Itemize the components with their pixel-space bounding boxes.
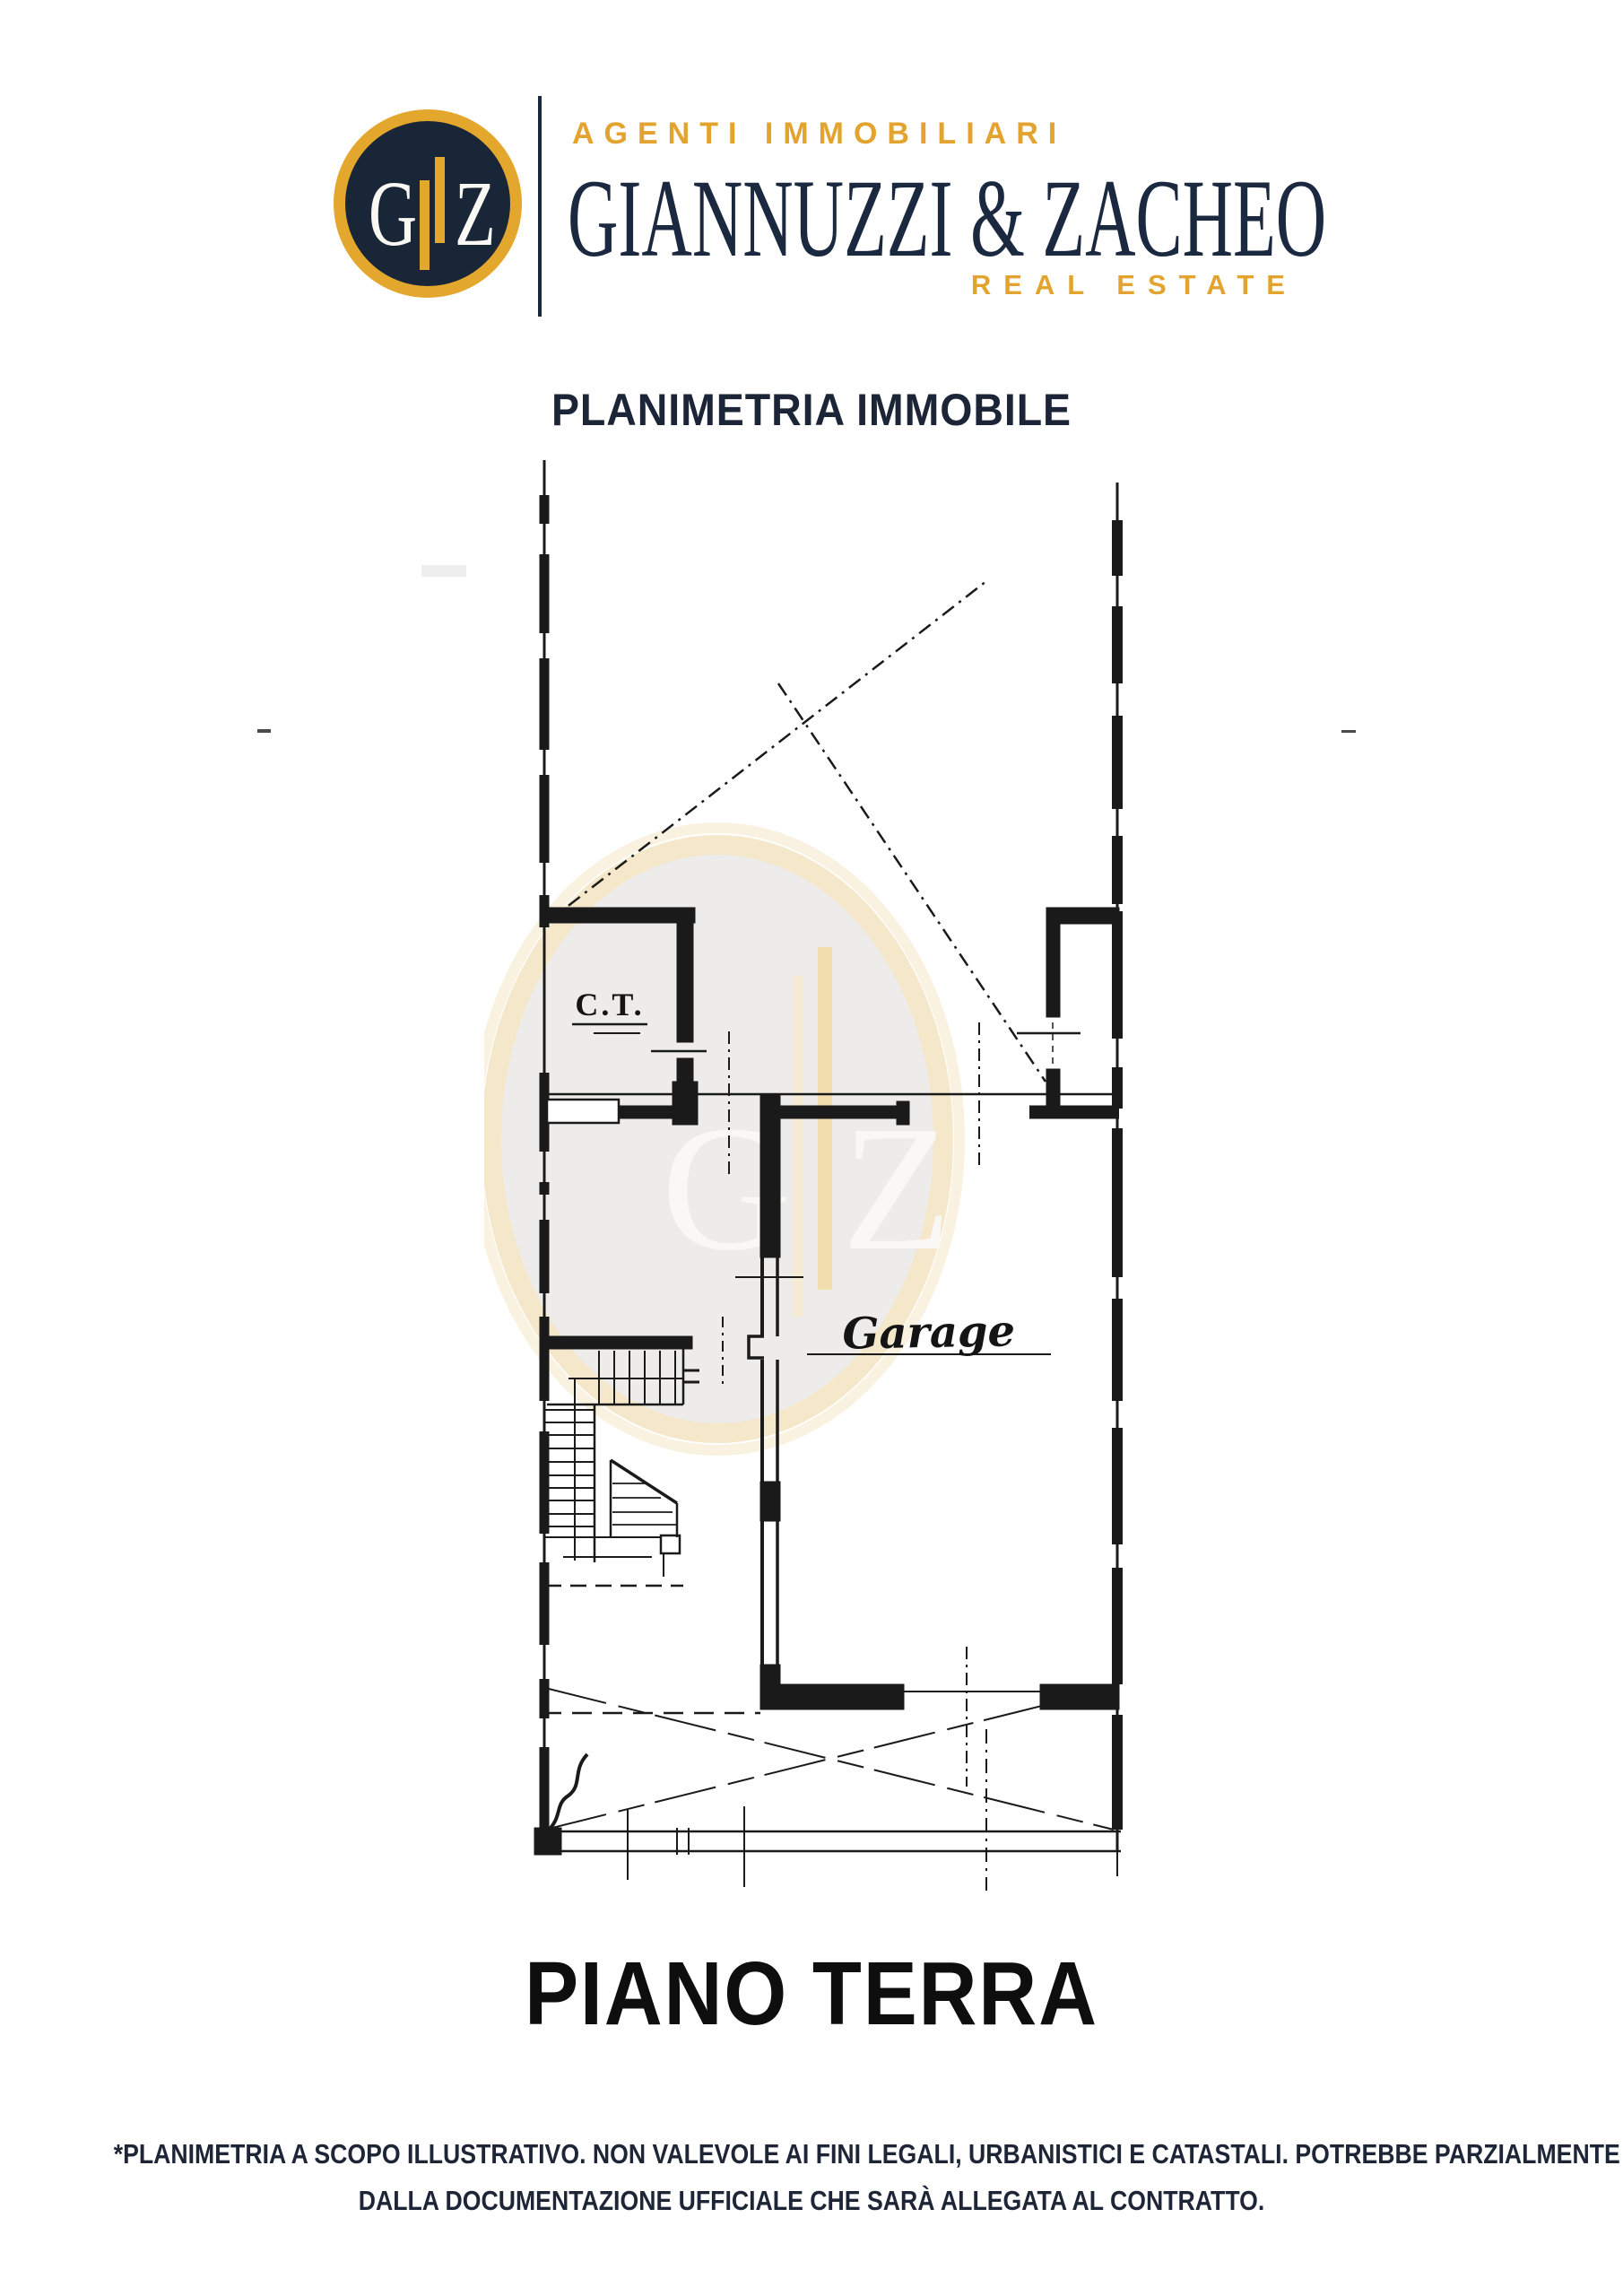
page-title: PLANIMETRIA IMMOBILE bbox=[56, 384, 1566, 436]
floor-label: PIANO TERRA bbox=[82, 1943, 1542, 2046]
brand-monogram-left: G bbox=[369, 168, 417, 261]
header: G Z AGENTI IMMOBILIARI GIANNUZZI & ZACHE… bbox=[0, 0, 1623, 430]
brand-name: GIANNUZZI & ZACHEO bbox=[568, 163, 1326, 274]
brand-monogram-bar-icon bbox=[420, 180, 430, 270]
registration-mark-right bbox=[1341, 730, 1356, 733]
room-label-ct: C.T. bbox=[575, 987, 644, 1022]
disclaimer-line-2: DALLA DOCUMENTAZIONE UFFICIALE CHE SARÀ … bbox=[114, 2185, 1510, 2217]
room-top-right bbox=[1017, 908, 1119, 1116]
page: G Z AGENTI IMMOBILIARI GIANNUZZI & ZACHE… bbox=[0, 0, 1623, 2296]
room-label-garage: Garage bbox=[842, 1306, 1016, 1359]
floor-plan: G Z bbox=[484, 430, 1166, 1937]
brand-monogram-bar-icon bbox=[435, 157, 445, 243]
disclaimer-line-1: *PLANIMETRIA A SCOPO ILLUSTRATIVO. NON V… bbox=[114, 2138, 1510, 2170]
brand-logo-icon: G Z bbox=[334, 109, 522, 298]
scan-artifact bbox=[421, 565, 466, 577]
wall-garage-bottom bbox=[760, 1647, 1119, 1787]
registration-mark-left bbox=[257, 729, 271, 733]
brand-tagline-bottom: REAL ESTATE bbox=[971, 269, 1298, 301]
brand-monogram-right: Z bbox=[455, 168, 496, 261]
brand-divider bbox=[538, 96, 542, 317]
brand-tagline-top: AGENTI IMMOBILIARI bbox=[572, 117, 1066, 152]
